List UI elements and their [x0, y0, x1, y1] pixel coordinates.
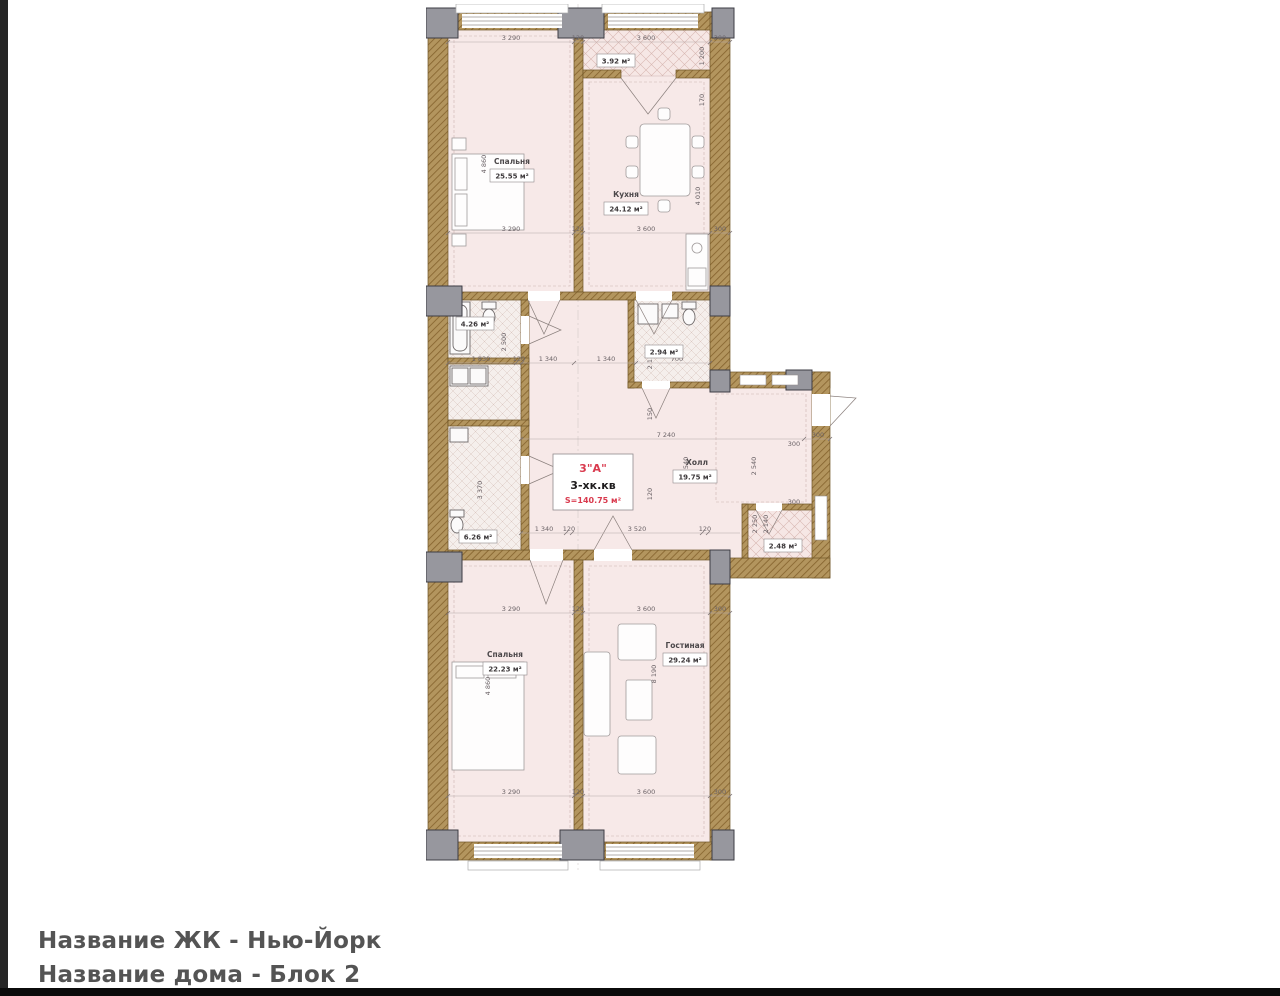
- dim-label: 300: [714, 225, 726, 233]
- room-label-wc: 2.94 м²: [645, 345, 683, 358]
- window-sill: [602, 4, 704, 13]
- caption-block: Название ЖК - Нью-Йорк Название дома - Б…: [38, 924, 382, 992]
- svg-text:19.75 м²: 19.75 м²: [678, 474, 711, 482]
- dim-label: 3 370: [476, 481, 484, 500]
- dim-label: 3 290: [502, 34, 521, 42]
- dim-label: 3 290: [502, 605, 521, 613]
- building-name-caption: Название дома - Блок 2: [38, 958, 382, 992]
- window-sill: [600, 861, 700, 870]
- wall-laundry-bath2: [448, 420, 529, 426]
- dim-label: 3 600: [637, 788, 656, 796]
- dim-label: 120: [513, 355, 525, 363]
- dim-label: 120: [572, 225, 584, 233]
- dim-label: 2 500: [500, 333, 508, 352]
- room-label-loggia-right: 2.48 м²: [764, 539, 802, 552]
- window-sill: [468, 861, 568, 870]
- room-label-loggia-top: 3.92 м²: [597, 54, 635, 67]
- wall-loggia-left: [583, 70, 621, 78]
- room-label-bathroom-2: 6.26 м²: [459, 530, 497, 543]
- dim-label: 3 290: [502, 225, 521, 233]
- svg-text:25.55 м²: 25.55 м²: [495, 173, 528, 181]
- dim-label: 4 860: [480, 155, 488, 174]
- dim-label: 120: [563, 525, 575, 533]
- entry-door-swing: [830, 396, 856, 426]
- svg-text:22.23 м²: 22.23 м²: [488, 666, 521, 674]
- room-label-bathroom-1: 4.26 м²: [456, 317, 494, 330]
- kitchen-counter-symbol: [686, 234, 708, 290]
- wall-divider-top: [574, 30, 583, 292]
- dim-label: 1 340: [597, 355, 616, 363]
- dim-label: 300: [812, 431, 824, 439]
- dim-label: 120: [646, 488, 654, 500]
- dim-label: 300: [714, 34, 726, 42]
- svg-text:Гостиная: Гостиная: [665, 641, 704, 650]
- left-edge-strip: [0, 0, 8, 996]
- room-label-bedroom-top: Спальня 25.55 м²: [490, 157, 534, 182]
- dim-label: 300: [788, 440, 800, 448]
- dim-label: 300: [714, 788, 726, 796]
- dim-label: 4 010: [694, 187, 702, 206]
- dim-label: 1 830: [472, 355, 491, 363]
- svg-text:6.26 м²: 6.26 м²: [464, 534, 493, 542]
- svg-text:Кухня: Кухня: [613, 190, 639, 199]
- room-label-living-room: Гостиная 29.24 м²: [663, 641, 707, 666]
- svg-text:4.26 м²: 4.26 м²: [461, 321, 490, 329]
- apartment-label: 3"А" 3-хк.кв S=140.75 м²: [553, 454, 633, 510]
- wall-left: [428, 12, 448, 860]
- svg-text:Спальня: Спальня: [487, 650, 523, 659]
- svg-text:Холл: Холл: [686, 458, 708, 467]
- dim-label: 2 250: [751, 515, 759, 534]
- svg-text:Спальня: Спальня: [494, 157, 530, 166]
- complex-name-caption: Название ЖК - Нью-Йорк: [38, 924, 382, 958]
- dim-label: 3 520: [628, 525, 647, 533]
- dim-label: 120: [572, 788, 584, 796]
- wall-mid-lower: [448, 550, 710, 560]
- dim-label: 120: [572, 34, 584, 42]
- window-sill: [456, 4, 568, 13]
- svg-text:24.12 м²: 24.12 м²: [609, 206, 642, 214]
- wall-balcony-left: [742, 504, 748, 558]
- dim-label: 120: [699, 525, 711, 533]
- dim-label: 3 290: [502, 788, 521, 796]
- dim-label: 2 540: [750, 457, 758, 476]
- dim-label: 2 140: [762, 515, 770, 534]
- dim-label: 7 240: [657, 431, 676, 439]
- dim-label: 1 200: [698, 47, 706, 66]
- svg-text:2.48 м²: 2.48 м²: [769, 543, 798, 551]
- wall-loggia-right: [676, 70, 710, 78]
- dim-label: 120: [572, 605, 584, 613]
- sink-symbol: [450, 428, 468, 442]
- dim-label: 3 600: [637, 34, 656, 42]
- dim-label: 8 190: [650, 665, 658, 684]
- toilet-symbol: [450, 510, 464, 533]
- dim-label: 300: [714, 605, 726, 613]
- room-label-bedroom-bottom: Спальня 22.23 м²: [483, 650, 527, 675]
- apartment-number: 3"А": [579, 462, 607, 475]
- floor-plan: 3 290 120 3 600 300 3 290 120 3 600 300 …: [426, 4, 860, 876]
- apartment-total-area: S=140.75 м²: [565, 496, 622, 505]
- washer-sink-symbol: [450, 366, 488, 386]
- wall-right-lower: [710, 550, 730, 860]
- dim-label: 300: [788, 498, 800, 506]
- svg-text:29.24 м²: 29.24 м²: [668, 657, 701, 665]
- wall-right-upper: [710, 12, 730, 388]
- dim-label: 4 860: [484, 677, 492, 696]
- dim-label: 170: [698, 94, 706, 106]
- floor-plan-container: 3 290 120 3 600 300 3 290 120 3 600 300 …: [426, 4, 860, 876]
- wall-wc-left: [628, 300, 634, 388]
- svg-text:2.94 м²: 2.94 м²: [650, 349, 679, 357]
- wall-divider-bottom: [574, 560, 583, 842]
- dim-label: 3 600: [637, 225, 656, 233]
- apartment-type: 3-хк.кв: [570, 479, 615, 492]
- dim-label: 150: [646, 408, 654, 420]
- dim-label: 1 340: [539, 355, 558, 363]
- dim-label: 3 600: [637, 605, 656, 613]
- svg-text:3.92 м²: 3.92 м²: [602, 58, 631, 66]
- dim-label: 1 340: [535, 525, 554, 533]
